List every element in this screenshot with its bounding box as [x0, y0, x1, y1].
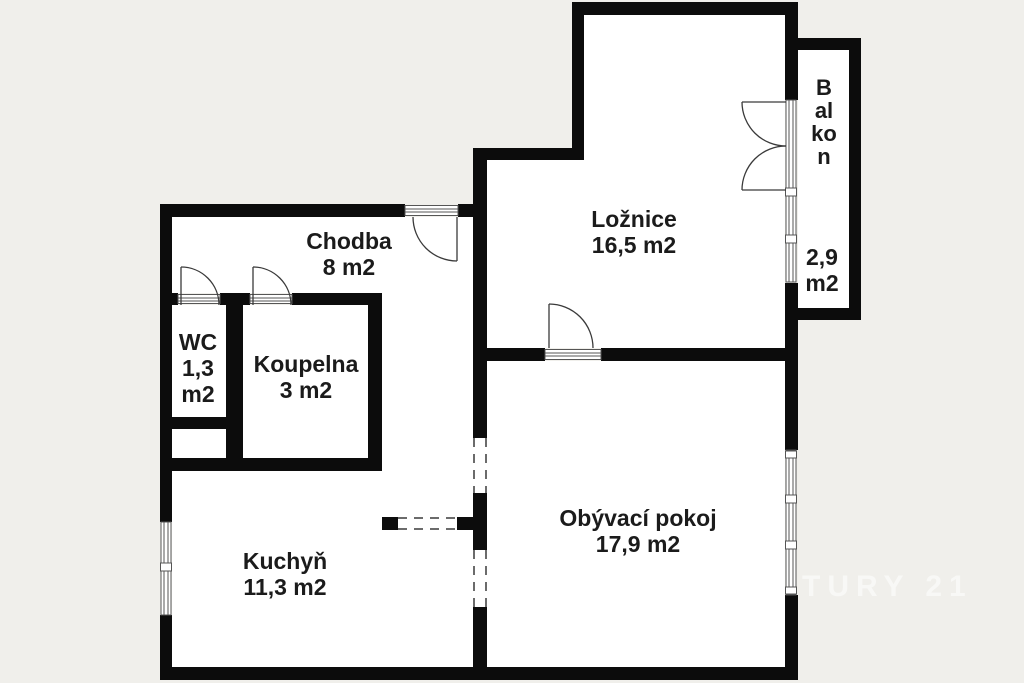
room-fill-chodba-leg [382, 293, 473, 517]
room-fill-loznice [584, 14, 785, 348]
wall [473, 607, 487, 667]
room-area: 11,3 m2 [243, 574, 327, 600]
wall [572, 2, 584, 160]
wall [473, 148, 487, 438]
kitchen-living-room-opening [473, 550, 487, 607]
kitchen-window [161, 522, 172, 615]
wall [793, 308, 861, 320]
room-name: Koupelna [254, 351, 359, 377]
bathroom-door-threshold [250, 295, 292, 304]
room-name: Obývací pokoj [559, 505, 716, 531]
watermark-text: TURY 21 [802, 570, 973, 604]
wall [382, 517, 398, 530]
wall [457, 517, 473, 530]
wall [601, 348, 785, 361]
hallway-living-room-opening [473, 438, 487, 493]
room-area: 17,9 m2 [559, 531, 716, 557]
wc-door-threshold [178, 295, 220, 304]
room-name: Chodba [306, 228, 392, 254]
floor-plan: Chodba 8 m2 WC 1,3 m2 Koupelna 3 m2 Ložn… [0, 0, 1024, 683]
room-area: 1,3 m2 [170, 355, 226, 407]
room-fill-loznice-annex [487, 160, 584, 348]
room-name: Ložnice [591, 206, 677, 232]
wall [473, 493, 487, 550]
wall [160, 667, 798, 680]
wall [160, 417, 243, 429]
hallway-kitchen-opening [398, 517, 457, 530]
room-area: 3 m2 [254, 377, 359, 403]
wall [572, 2, 798, 15]
room-label-kuchyn: Kuchyň 11,3 m2 [243, 548, 327, 600]
bedroom-door-threshold [545, 350, 601, 360]
wall [160, 293, 178, 305]
entrance-door-threshold [405, 206, 458, 216]
wall [368, 305, 382, 471]
wall [160, 458, 382, 471]
wall [292, 293, 382, 305]
room-fill-shaft [172, 429, 226, 458]
room-name: Kuchyň [243, 548, 327, 574]
wall [473, 148, 584, 160]
wall [849, 38, 861, 320]
room-label-wc: WC 1,3 m2 [170, 329, 226, 407]
room-label-loznice: Ložnice 16,5 m2 [591, 206, 677, 258]
room-fill-kuchyn-right [382, 530, 473, 667]
room-area: 8 m2 [306, 254, 392, 280]
wall [487, 348, 545, 361]
wall [458, 204, 475, 217]
wall [220, 293, 250, 305]
wall [160, 204, 405, 217]
living-room-window [786, 450, 797, 595]
wall [226, 305, 243, 471]
room-name: WC [179, 329, 217, 355]
room-area: 16,5 m2 [591, 232, 677, 258]
room-label-balkon-area: 2,9 m2 [794, 244, 850, 296]
room-label-chodba: Chodba 8 m2 [306, 228, 392, 280]
room-label-koupelna: Koupelna 3 m2 [254, 351, 359, 403]
wall [785, 595, 798, 680]
wall [785, 2, 798, 100]
balcony-door-panel [786, 100, 796, 188]
room-label-obyvaci-pokoj: Obývací pokoj 17,9 m2 [559, 505, 716, 557]
room-label-balkon-name: Balkon [811, 76, 837, 168]
